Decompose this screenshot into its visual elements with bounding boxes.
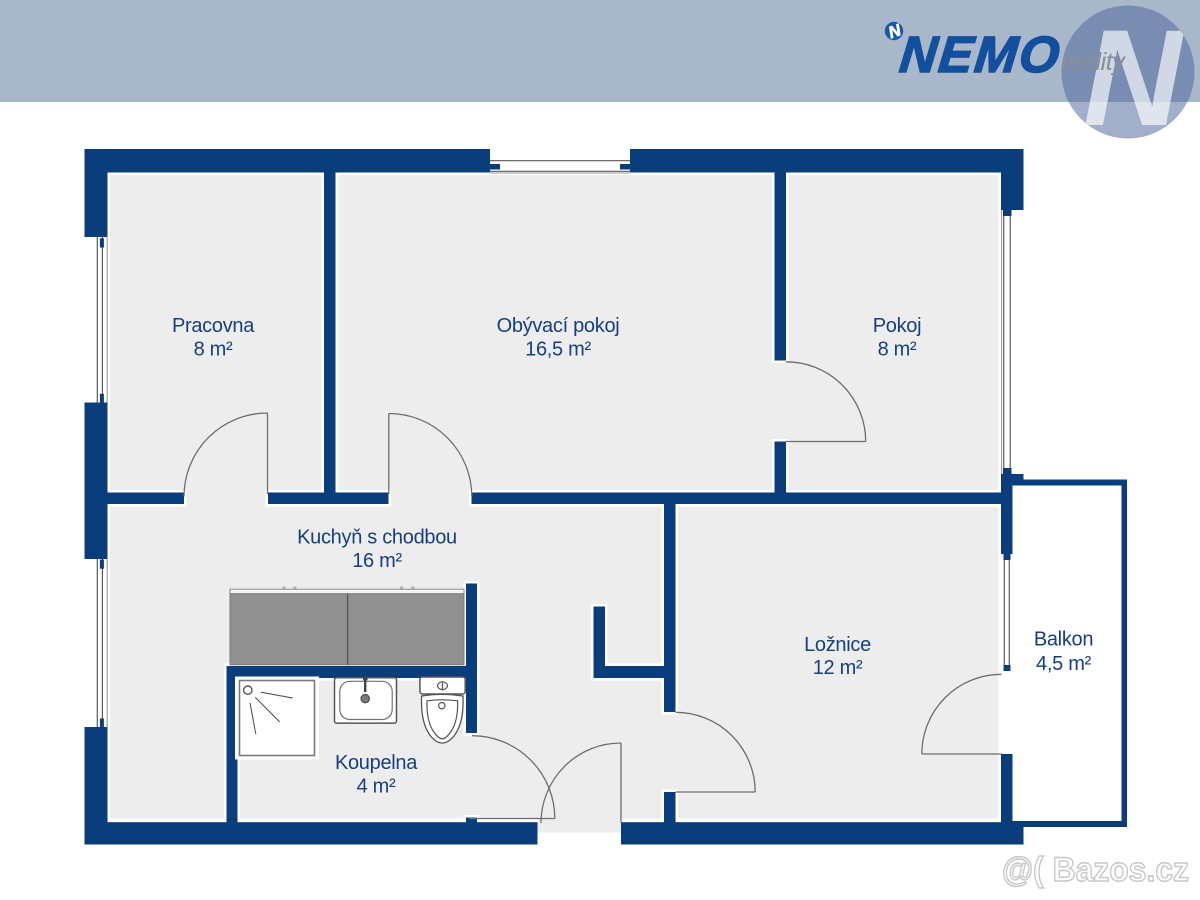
svg-text:Koupelna: Koupelna xyxy=(335,752,418,774)
svg-text:12 m²: 12 m² xyxy=(813,657,863,679)
svg-text:Pokoj: Pokoj xyxy=(873,315,922,337)
svg-text:Pracovna: Pracovna xyxy=(172,315,255,337)
svg-text:Obývací pokoj: Obývací pokoj xyxy=(497,315,620,337)
svg-text:reality: reality xyxy=(1061,48,1126,76)
svg-text:8 m²: 8 m² xyxy=(878,339,917,361)
svg-text:Ložnice: Ložnice xyxy=(804,634,871,656)
svg-text:16 m²: 16 m² xyxy=(352,550,402,572)
svg-text:4 m²: 4 m² xyxy=(357,776,396,798)
svg-text:Balkon: Balkon xyxy=(1034,629,1093,651)
svg-text:16,5 m²: 16,5 m² xyxy=(525,339,591,361)
svg-text:4,5 m²: 4,5 m² xyxy=(1036,653,1092,675)
svg-text:NEMO: NEMO xyxy=(897,26,1064,83)
svg-text:8 m²: 8 m² xyxy=(194,339,233,361)
svg-text:@( Bazos.cz: @( Bazos.cz xyxy=(1002,851,1189,889)
svg-text:Kuchyň s chodbou: Kuchyň s chodbou xyxy=(297,527,457,549)
